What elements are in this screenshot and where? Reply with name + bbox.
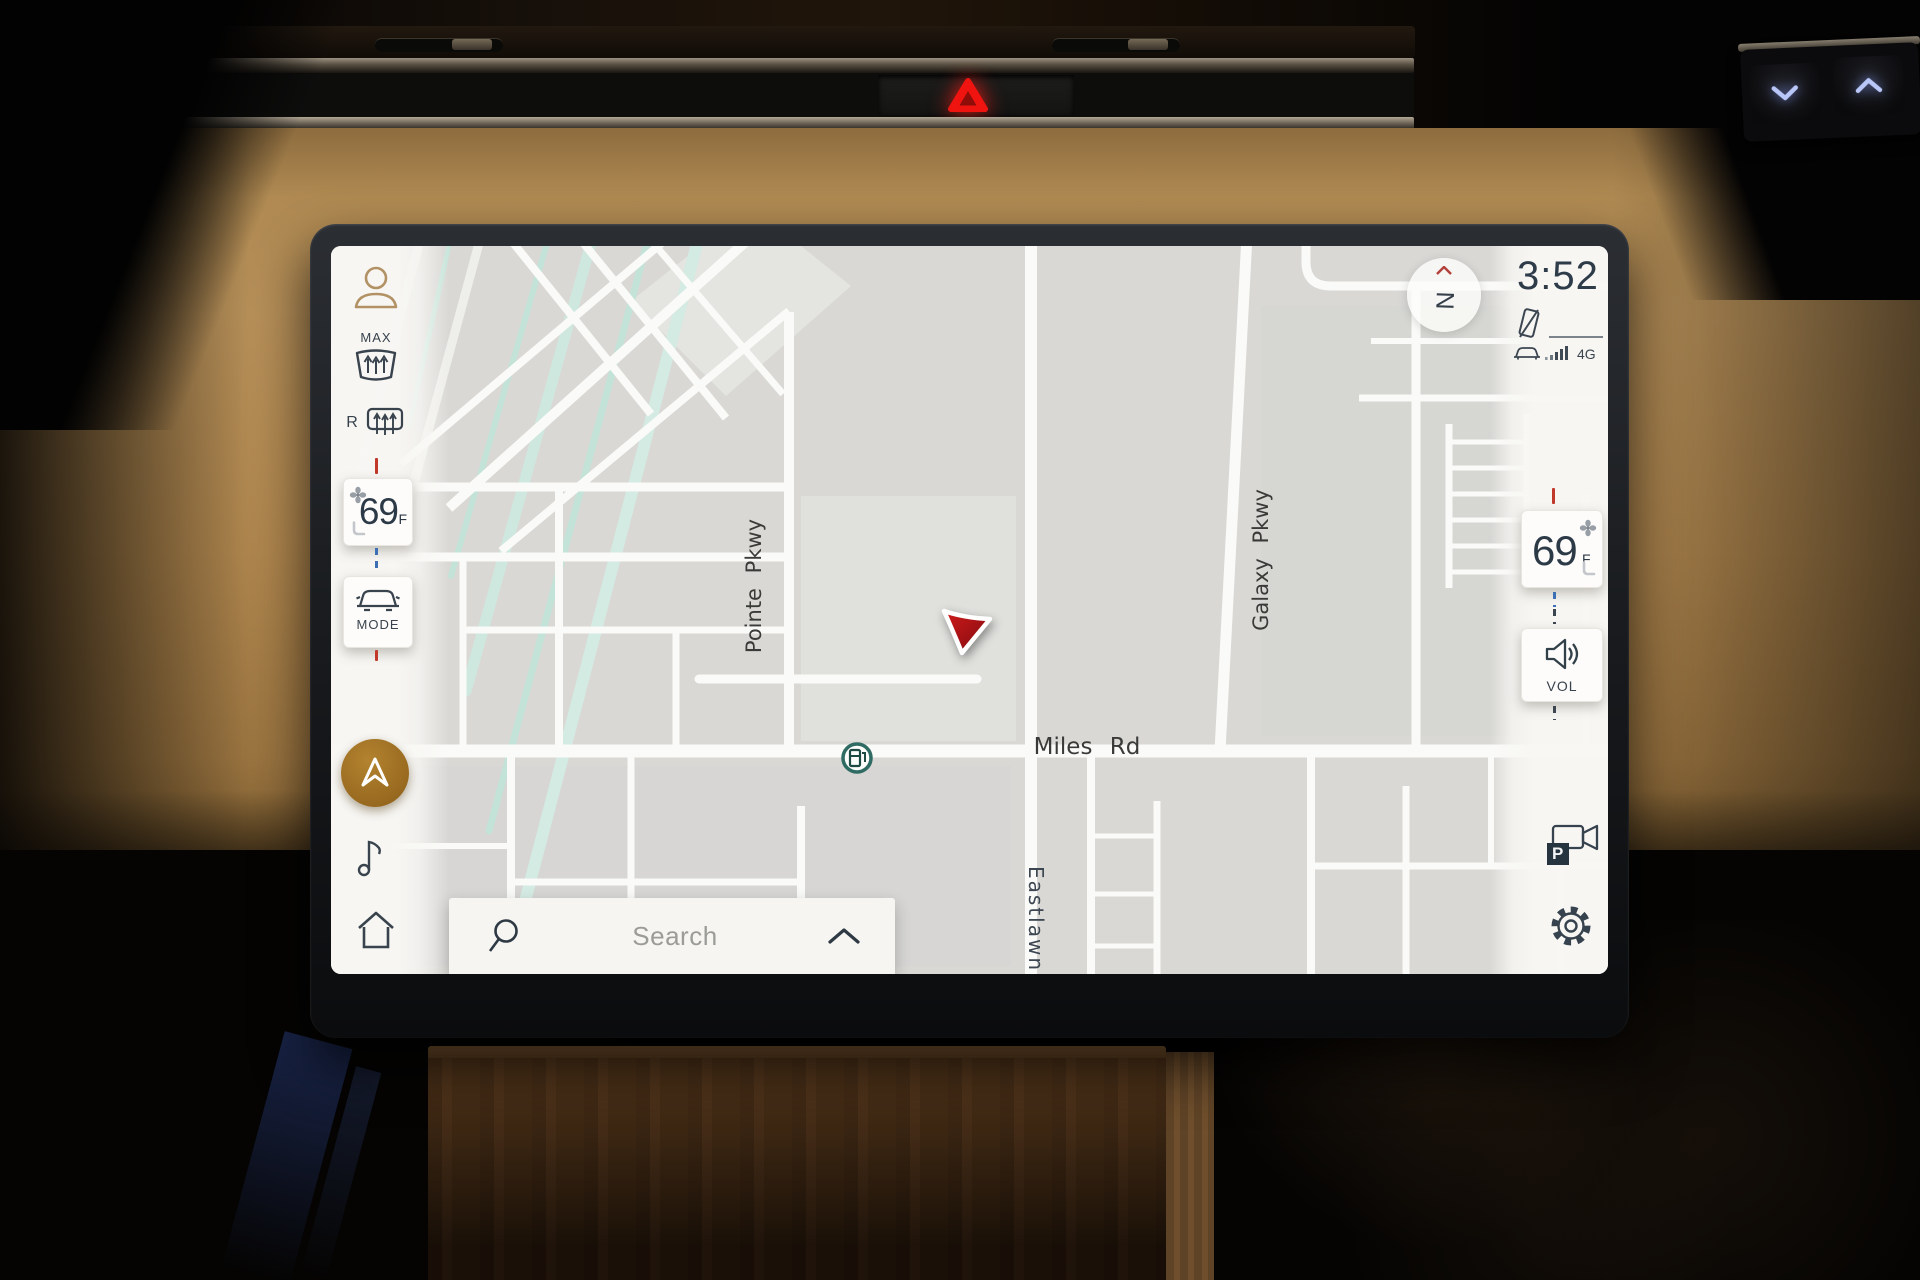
road-label-pointe: Pointe Pkwy: [742, 519, 766, 653]
wood-trim-side: [1166, 1052, 1214, 1280]
compass-letter: N: [1429, 290, 1459, 309]
volume-icon: [1540, 635, 1584, 673]
driver-temp-value: 69: [359, 491, 398, 533]
volume-button[interactable]: VOL: [1521, 628, 1603, 702]
chevron-down-icon: [1769, 83, 1802, 102]
temp-scale-cool: [1553, 592, 1556, 607]
chevron-up-icon: [1852, 76, 1885, 95]
vehicle-connection-icon: [1513, 343, 1541, 362]
phone-disconnected-icon: [1515, 306, 1543, 340]
profile-button[interactable]: [349, 262, 403, 316]
passenger-temperature-control[interactable]: 69 F: [1521, 510, 1603, 588]
touchscreen: Pointe Pkwy Galaxy Pkwy Miles Rd Eastlaw…: [331, 246, 1608, 974]
max-defrost-button[interactable]: MAX: [331, 330, 421, 390]
vent-adjuster-tab[interactable]: [1128, 39, 1168, 50]
drive-mode-button[interactable]: MODE: [343, 576, 413, 648]
driver-temperature-control[interactable]: 69 F: [343, 478, 413, 546]
drive-mode-label: MODE: [344, 617, 412, 632]
rear-defrost-label: R: [346, 414, 358, 432]
passenger-temp-value: 69: [1532, 527, 1577, 575]
navigation-app-button[interactable]: [341, 739, 409, 807]
compass-north-caret-icon: [1435, 266, 1453, 276]
rail-dash: [1553, 706, 1556, 720]
seat-heat-icon: [1580, 561, 1596, 577]
driver-temp-unit: F: [398, 511, 407, 527]
chevron-up-icon[interactable]: [827, 927, 861, 945]
home-icon: [353, 906, 399, 954]
vehicle-position-arrow: [931, 596, 1001, 662]
max-defrost-icon: [352, 345, 400, 385]
settings-button[interactable]: [1543, 898, 1599, 954]
clock: 3:52: [1517, 254, 1599, 299]
media-button[interactable]: [351, 834, 401, 882]
rocker-up-button[interactable]: [1833, 55, 1905, 116]
temp-tick-warm: [1552, 488, 1555, 504]
network-badge: 4G: [1577, 346, 1596, 362]
rocker-down-button[interactable]: [1749, 63, 1821, 124]
search-bar[interactable]: Search: [449, 898, 895, 974]
search-icon: [483, 915, 523, 957]
rear-defrost-button[interactable]: R: [331, 406, 421, 440]
parking-camera-p-label: P: [1552, 844, 1563, 864]
road-label-eastlawn: Eastlawn: [1024, 866, 1048, 972]
dashboard-scene: Pointe Pkwy Galaxy Pkwy Miles Rd Eastlaw…: [0, 0, 1920, 1280]
volume-label: VOL: [1522, 678, 1602, 694]
mode-tick: [375, 650, 378, 661]
temp-scale-cool: [375, 548, 378, 572]
car-mode-icon: [355, 584, 401, 612]
home-button[interactable]: [353, 906, 399, 954]
infotainment-display: Pointe Pkwy Galaxy Pkwy Miles Rd Eastlaw…: [310, 224, 1629, 1038]
hazard-lights-button[interactable]: [930, 74, 1006, 116]
road-label-galaxy: Galaxy Pkwy: [1249, 489, 1273, 631]
parking-camera-icon: [1539, 818, 1603, 876]
wood-trim-shading: [428, 1058, 1166, 1280]
temp-scale: [1553, 609, 1556, 624]
vent-adjuster-tab[interactable]: [452, 39, 492, 50]
parking-camera-button[interactable]: P: [1539, 818, 1603, 876]
search-placeholder: Search: [523, 921, 827, 952]
settings-gear-icon: [1543, 898, 1599, 954]
road-label-miles: Miles Rd: [1034, 734, 1141, 760]
hazard-triangle-icon: [946, 76, 990, 114]
temp-tick-warm: [375, 458, 378, 474]
fuel-station-poi[interactable]: [840, 741, 874, 775]
music-note-icon: [351, 834, 393, 880]
fan-icon: [1579, 519, 1597, 537]
signal-bars-icon: [1545, 345, 1571, 361]
max-defrost-label: MAX: [331, 330, 421, 345]
rocker-switch-panel: [1740, 42, 1920, 142]
rear-defrost-icon: [364, 406, 406, 440]
nav-arrow-icon: [353, 751, 397, 795]
compass-button[interactable]: N: [1407, 258, 1481, 332]
status-divider: [1549, 336, 1603, 338]
profile-icon: [349, 262, 403, 316]
